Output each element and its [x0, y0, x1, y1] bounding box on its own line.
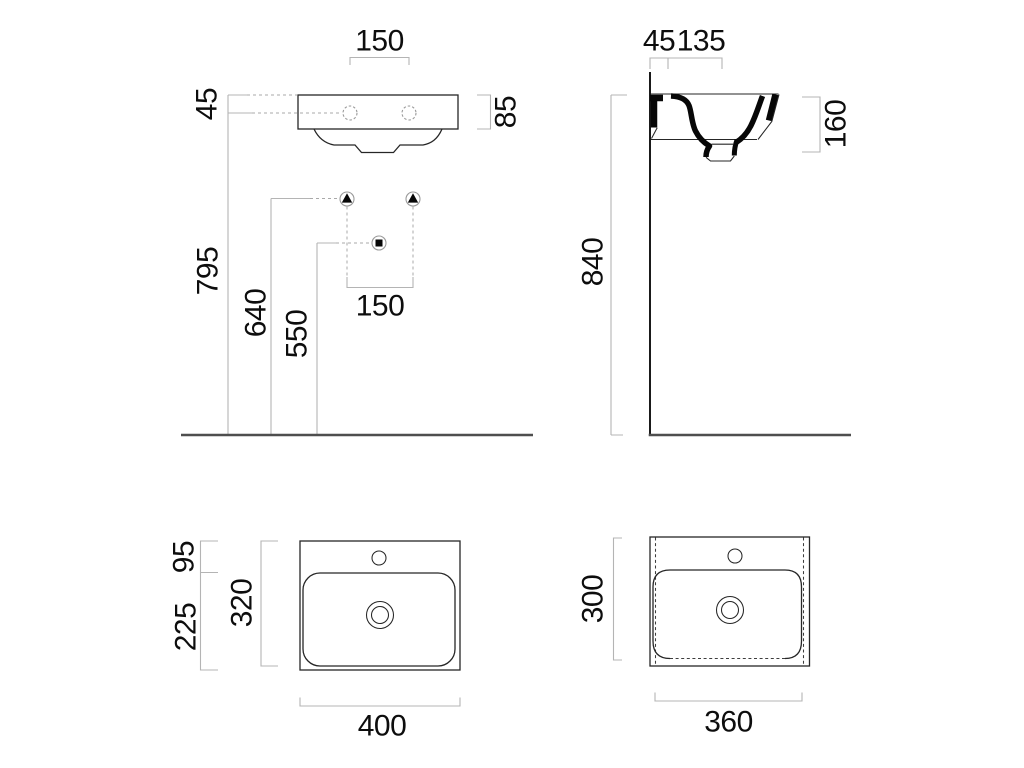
tap-hole-plan: [372, 551, 386, 565]
drain-outer-bottom: [717, 597, 744, 624]
leader-rim-and-holes: [247, 95, 341, 113]
basin-back-taper-line: [652, 128, 658, 139]
dim-bracket-45-135: [650, 58, 722, 69]
dim-bottom-base-width: 360: [704, 706, 753, 739]
tap-hole-bottom: [728, 549, 742, 563]
dim-side-floor-to-rim: 840: [577, 238, 610, 287]
dim-bracket-95-225: [201, 541, 219, 670]
drain-marker-square: [376, 240, 383, 247]
dim-front-floor-to-holes: 795: [192, 247, 225, 296]
drawing-canvas: 150 85 45 795 640 550 150: [0, 0, 1024, 768]
top-view: 95 225 320 400: [168, 541, 461, 743]
dim-bracket-360: [655, 693, 802, 702]
dim-front-tap-spacing: 150: [355, 25, 404, 58]
dim-bracket-320: [261, 541, 278, 666]
basin-front-edge-section: [769, 95, 776, 121]
technical-drawing: 150 85 45 795 640 550 150: [0, 0, 1024, 768]
dim-bracket-tap-spacing: [350, 58, 409, 66]
dim-bracket-300: [614, 538, 623, 660]
dim-top-overall-width: 400: [358, 710, 407, 743]
dim-bracket-160: [802, 97, 820, 152]
dim-front-rim-to-holes: 45: [191, 88, 224, 120]
dim-front-floor-to-fixings: 640: [240, 289, 273, 338]
side-view: 45 135 160 840: [577, 25, 853, 436]
dim-bracket-rim-height: [477, 95, 491, 129]
dim-top-bowl-depth: 320: [226, 579, 259, 628]
bowl-inner-wall-left-section: [671, 96, 710, 157]
tap-hole-left-hidden: [343, 106, 357, 120]
drain-inner-plan: [372, 607, 389, 624]
bottom-view: 300 360: [577, 537, 810, 739]
dim-side-wall-to-fixing: 45: [643, 25, 675, 58]
bowl-plan-outline: [303, 573, 455, 666]
dim-side-basin-height: 160: [820, 100, 853, 149]
dim-bracket-400: [300, 698, 460, 707]
tap-hole-right-hidden: [402, 106, 416, 120]
dim-front-rim-height: 85: [490, 96, 523, 128]
dim-bracket-fixing-spacing: [347, 277, 413, 288]
dim-bottom-base-depth: 300: [577, 575, 610, 624]
dim-top-bowl-to-front: 225: [170, 603, 203, 652]
dim-front-floor-to-drain: 550: [281, 310, 314, 359]
bowl-inner-wall-right-section: [736, 96, 763, 143]
basin-front-outline: [298, 95, 458, 129]
front-view: 150 85 45 795 640 550 150: [181, 25, 533, 436]
basin-plan-outline: [300, 541, 460, 670]
dim-line-840: [611, 95, 627, 435]
drain-outlet-outline: [706, 156, 734, 161]
drain-inner-bottom: [722, 602, 739, 619]
dim-line-550: [317, 243, 336, 435]
base-bowl-outline: [653, 570, 802, 659]
dim-front-fixing-spacing: 150: [356, 290, 405, 323]
dim-top-back-ledge: 95: [168, 541, 201, 573]
dim-side-fixing-to-tap: 135: [677, 25, 726, 58]
dim-ticks-45: [228, 95, 252, 113]
drain-outer-plan: [367, 602, 394, 629]
basin-front-bowl-outline: [314, 129, 442, 153]
